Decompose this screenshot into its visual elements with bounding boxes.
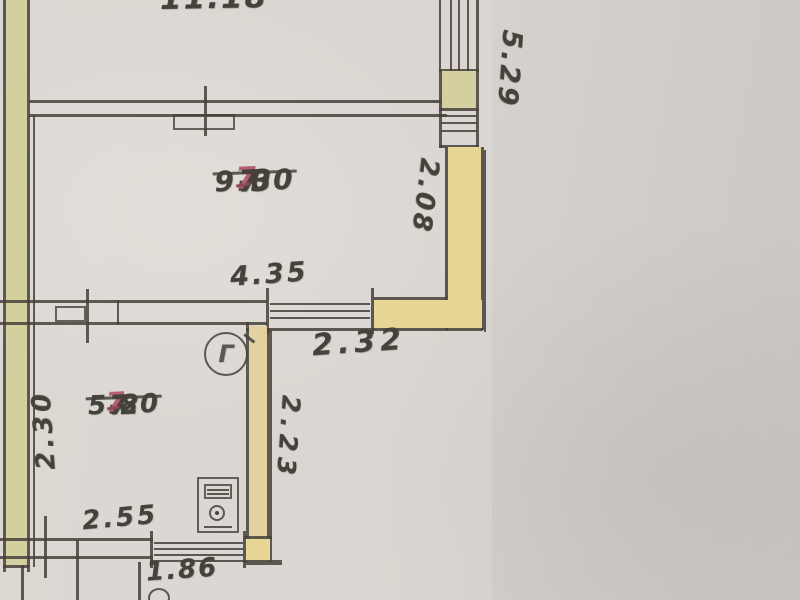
wall-line bbox=[0, 300, 267, 303]
dimension-label-right-height: 5.29 bbox=[492, 26, 528, 112]
dimension-label-r72-width: 2.55 bbox=[81, 502, 159, 535]
wall-accent-line bbox=[270, 330, 272, 562]
wall-line bbox=[21, 565, 24, 600]
wall-line bbox=[244, 536, 272, 539]
wall-fill bbox=[441, 71, 477, 109]
wall-line bbox=[33, 115, 35, 567]
window-line bbox=[441, 115, 477, 117]
stove-burner-dot bbox=[215, 511, 219, 515]
wall-fill bbox=[246, 538, 270, 561]
stove-grate-line bbox=[207, 489, 229, 491]
wall-line bbox=[138, 562, 141, 600]
wall-line bbox=[76, 540, 79, 600]
wall-line bbox=[439, 108, 479, 111]
dimension-label-r73-width: 4.35 bbox=[229, 258, 309, 290]
gas-meter-symbol: Г bbox=[204, 332, 248, 376]
wall-line bbox=[27, 0, 30, 572]
dimension-tick bbox=[44, 516, 47, 578]
dimension-label-passage: 2.32 bbox=[311, 325, 407, 361]
stove-line bbox=[204, 526, 232, 528]
dimension-tick bbox=[86, 289, 89, 343]
stove-grate-line bbox=[207, 493, 229, 495]
window-line bbox=[270, 303, 370, 305]
window-line bbox=[441, 130, 477, 132]
wall-line bbox=[3, 565, 29, 568]
floor-plan-scan: Г 11.18 5.29 2.08 7 7 -3 9.00 4.35 2.32 … bbox=[0, 0, 800, 600]
wall-accent-line bbox=[246, 563, 282, 565]
stove-grate bbox=[204, 484, 232, 499]
room-7-2-label: 7 7 -2 5.80 bbox=[76, 390, 173, 419]
gas-meter-letter: Г bbox=[218, 342, 233, 366]
wall-line bbox=[29, 100, 447, 103]
wall-fill bbox=[249, 326, 267, 562]
dimension-tick bbox=[204, 86, 207, 136]
window-line bbox=[439, 0, 441, 71]
wall-line bbox=[0, 322, 267, 325]
wall-accent-line bbox=[484, 150, 486, 332]
window-line bbox=[154, 548, 243, 550]
dimension-tick bbox=[117, 300, 119, 325]
window-line bbox=[476, 0, 479, 71]
window-line bbox=[154, 542, 243, 544]
wall-fill bbox=[6, 0, 28, 566]
window-line bbox=[467, 0, 469, 71]
wall-junction-mark bbox=[55, 306, 86, 322]
dimension-label-porch: 1.86 bbox=[145, 555, 219, 586]
wall-line bbox=[29, 114, 447, 117]
dimension-label-top-area: 11.18 bbox=[160, 0, 269, 15]
room-7-3-label: 7 7 -3 9.00 bbox=[203, 165, 308, 197]
window-line bbox=[458, 0, 460, 71]
window-line bbox=[441, 122, 477, 124]
window-line bbox=[270, 310, 370, 312]
window-line bbox=[270, 317, 370, 319]
window-line bbox=[450, 0, 452, 71]
